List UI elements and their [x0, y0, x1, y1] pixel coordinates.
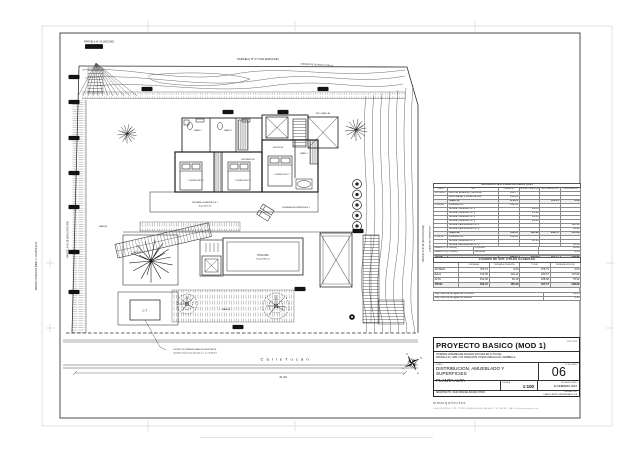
bed [228, 162, 250, 190]
sheet-number: 06 [539, 364, 579, 381]
svg-text:3.25: 3.25 [356, 230, 361, 233]
firm-logo-text: mmarquitectos [433, 401, 466, 405]
sun-loungers [257, 204, 274, 221]
scale-value: 1:100 [523, 384, 534, 389]
manhole [349, 314, 355, 320]
table-cell: 155.30 [489, 283, 520, 288]
svg-text:PETO VARILLAS: PETO VARILLAS [316, 112, 331, 115]
table-side-label: CUADRO DE SUPERFICIES [429, 225, 432, 252]
side-stamp: PROYECTO BASICO (MOD 1) - PLANTA ALTA [35, 241, 38, 290]
svg-text:E: E [420, 356, 423, 360]
svg-text:BAÑO 1: BAÑO 1 [300, 152, 308, 155]
table-cell: 797.77 [520, 283, 551, 288]
retaining-wall-left [73, 100, 87, 333]
architect: ARQUITECTO: JUAN MANUEL BAURA CHONI [434, 391, 525, 398]
patio-skylight [266, 117, 288, 138]
svg-text:VESTIDOR: VESTIDOR [273, 147, 284, 149]
svg-text:5.15: 5.15 [226, 111, 231, 114]
svg-text:DORMITORIO 2: DORMITORIO 2 [188, 180, 204, 182]
svg-text:8.60: 8.60 [72, 291, 77, 294]
svg-text:18.15: 18.15 [71, 76, 78, 79]
project-title: PROYECTO BASICO (MOD 1) [434, 338, 579, 350]
promotor-name: LANDS GRUPO INMOBILIARIO S.A [525, 394, 577, 397]
pool-area-label: Sup=39.68 m2 [256, 259, 270, 261]
table-cell: 642.47 [459, 283, 490, 288]
svg-text:14.20: 14.20 [71, 137, 78, 140]
svg-text:9.75: 9.75 [72, 251, 77, 254]
drawing-sheet: PROYECTO BASICO (MOD 1) - PLANTA ALTA CU… [0, 0, 640, 452]
table-cell: ANEXO II (P. BAJA) [434, 251, 474, 255]
ct-label: C.T. [142, 309, 148, 313]
ct-note: CENTRO DE TRANSFORMACION EXISTENTE. [173, 348, 217, 351]
table-cell: JACUZZI [474, 251, 539, 255]
parcela-topleft-chip: Nº 30 [85, 44, 103, 49]
svg-text:N: N [405, 352, 408, 356]
svg-text:16.73: 16.73 [71, 101, 78, 104]
svg-text:DORMITORIO 3: DORMITORIO 3 [235, 180, 251, 182]
street-dimension: 41.36 [279, 375, 287, 379]
svg-text:4.40: 4.40 [281, 111, 286, 114]
water-surface-notes-table: Sup. Lámina de agua de PISCINA39.68Sup. … [433, 292, 581, 301]
table-cell: TOTAL [434, 283, 459, 288]
house [150, 115, 338, 221]
svg-text:S: S [417, 372, 420, 376]
garden-label: JARDIN [222, 308, 230, 311]
svg-text:7.45: 7.45 [145, 88, 150, 91]
planter-circles [353, 180, 362, 231]
svg-text:TERRAZA DESCUBIERTA P.A. 1: TERRAZA DESCUBIERTA P.A. 1 [282, 206, 310, 209]
address-line: PARCELA 22, URB. LOS NARANJOS, NUEVA AND… [436, 356, 577, 359]
table-cell: 4.48 [544, 297, 581, 301]
svg-text:DISTRIBUIDOR: DISTRIBUIDOR [241, 159, 255, 161]
scan-artifact-line [200, 437, 433, 438]
expediente-number: EXP. 2012 [567, 341, 577, 343]
svg-text:Nº 30: Nº 30 [91, 45, 98, 49]
svg-text:TERRAZA CUBIERTA P.A. 1: TERRAZA CUBIERTA P.A. 1 [192, 201, 219, 204]
jacuzzi [202, 256, 221, 275]
terrain-contours [82, 69, 405, 98]
parcela-topleft-label: PARCELA Nº 30 (VECINO) [84, 40, 114, 44]
svg-text:DORMITORIO 1: DORMITORIO 1 [274, 174, 290, 176]
firm-contact-info: CASA CRISTINA 4/5, 2ºB - 1ºB EDF. MALAGA… [433, 408, 538, 410]
sheet-number-label: Nº DE PLANO [565, 364, 577, 366]
pergola [320, 233, 352, 287]
bed [268, 156, 292, 186]
annex-table: ANEXO I (P. BAJA)PISCINA39.68ANEXO II (P… [433, 246, 581, 255]
garden-label: JARDIN [99, 225, 107, 228]
utiles-table: CUADRO DE SUP. UTILES GLOBALESCERRADATER… [433, 257, 581, 288]
pool-label: PISCINA [257, 253, 268, 257]
bed [180, 162, 202, 190]
table-cell: 4.48 [539, 251, 581, 255]
date-label: FECHA DE PLANO [561, 382, 577, 384]
plano-name: DISTRIBUCION, AMUEBLADO Y SUPERFICIES [436, 366, 536, 376]
parcela-right-label: PARCELA Nº 24 (SIN EDIFICAR) [421, 225, 425, 262]
svg-text:1.05: 1.05 [236, 326, 241, 329]
project-address: VIVIENDA UNIFAMILIAR AISLADA SITUADA EN … [434, 352, 579, 363]
transformer-box [118, 292, 178, 350]
svg-text:12.05: 12.05 [71, 172, 78, 175]
svg-text:BAÑO 2: BAÑO 2 [194, 129, 202, 132]
svg-text:10.90: 10.90 [71, 206, 78, 209]
pool [200, 238, 303, 276]
date-value: 16 FEBRERO 2016 [554, 385, 577, 388]
svg-text:Sup= 36.18 m2: Sup= 36.18 m2 [199, 206, 212, 208]
closet [310, 140, 318, 164]
table-cell: Sup. Lámina de agua de Jacuzzi [434, 297, 544, 301]
svg-text:6.30: 6.30 [321, 88, 326, 91]
titleblock-spacer [434, 381, 501, 390]
svg-text:O: O [402, 367, 405, 371]
svg-text:BAÑO 3: BAÑO 3 [224, 129, 232, 132]
title-block: PROYECTO BASICO (MOD 1) EXP. 2012 VIVIEN… [433, 337, 580, 397]
street-name-label: C a l l e T u c á n [260, 357, 309, 362]
ct-note: Superficie de parcela afectada a C.T. = … [173, 351, 217, 354]
scale-label: ESCALA [503, 382, 510, 384]
svg-text:2.10: 2.10 [298, 288, 303, 291]
north-arrow: N S E O [396, 347, 429, 380]
closet [214, 152, 222, 192]
parcela-top-label: PARCELA Nº 27 (SIN EDIFICAR) [237, 57, 279, 61]
closet [238, 120, 248, 150]
slope-fan-topleft [78, 63, 137, 96]
table-cell: 248.92 [550, 283, 581, 288]
street [63, 340, 418, 375]
